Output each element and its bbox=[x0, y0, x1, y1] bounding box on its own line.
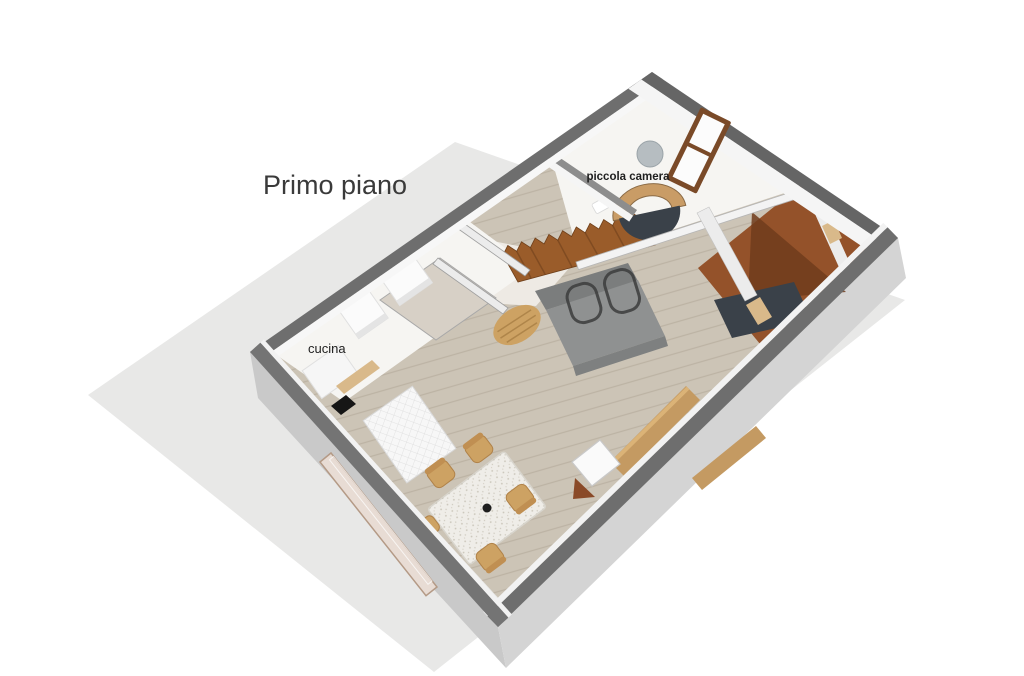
bedroom-label: piccola camera bbox=[586, 171, 670, 183]
floorplan-canvas: Primo piano piccola camera cucina bbox=[0, 0, 1024, 676]
table-centerpiece bbox=[483, 504, 492, 513]
floor-title-label: Primo piano bbox=[263, 170, 407, 200]
kitchen-label: cucina bbox=[308, 341, 346, 356]
floorplan-page: Primo piano piccola camera cucina bbox=[0, 0, 1024, 676]
ceiling-lamp bbox=[637, 141, 663, 167]
